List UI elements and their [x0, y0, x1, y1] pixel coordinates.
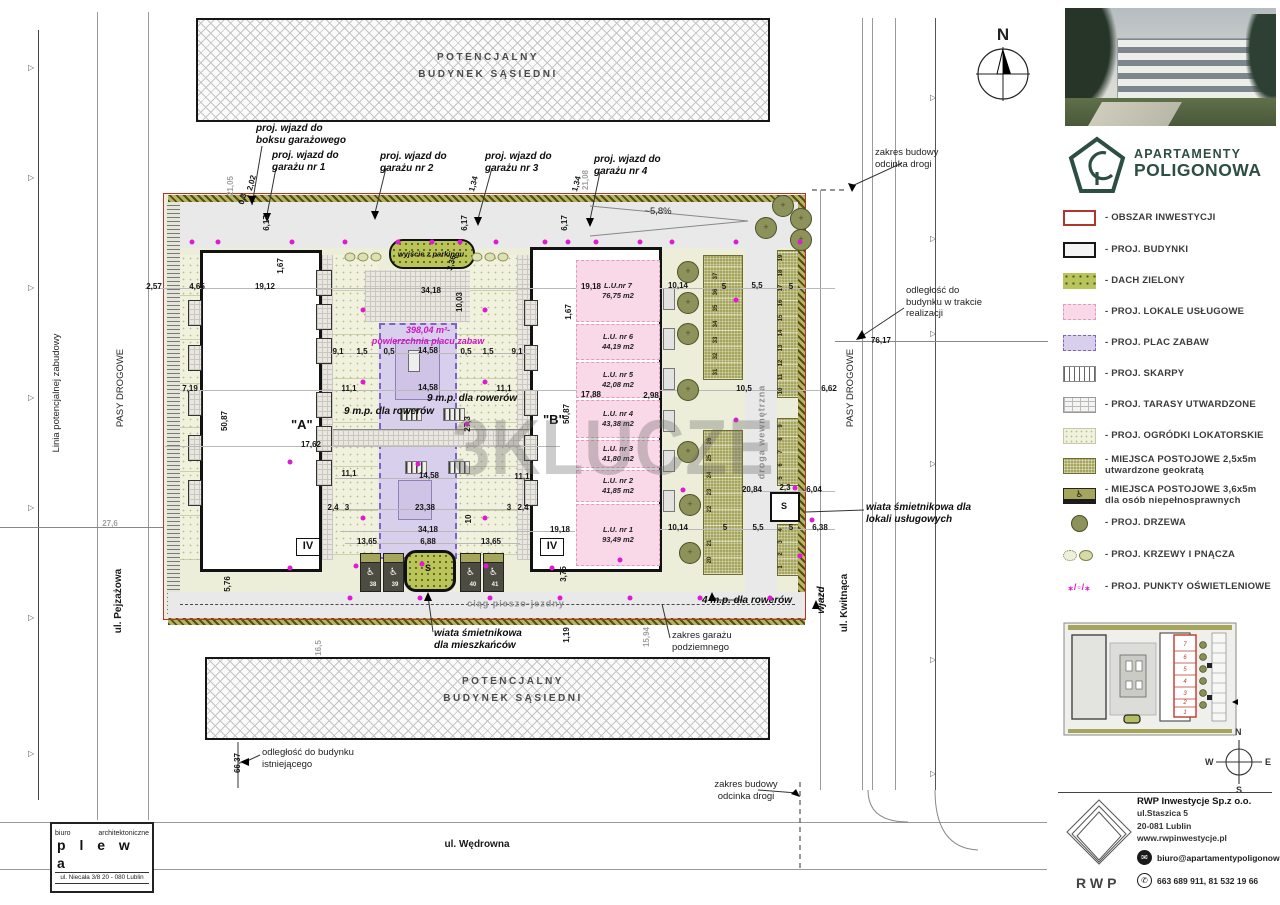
parking-space-number: 17 — [778, 285, 784, 292]
parking-space-number: 13 — [778, 345, 784, 352]
architect-block: biuro architektoniczne p l e w a ul. Nie… — [50, 822, 154, 893]
parking-space-number: 16 — [778, 300, 784, 307]
dimension-label: 11,1 — [341, 385, 356, 393]
tree-icon: + — [677, 323, 699, 345]
lighting-point-icon — [798, 554, 803, 559]
annotation: ul. Wędrowna — [445, 839, 510, 851]
legend-item: ⁎/▫/⁎- PROJ. PUNKTY OŚWIETLENIOWE — [1063, 579, 1271, 595]
boundary-marker: ▷ — [930, 460, 936, 468]
lighting-point-icon — [190, 240, 195, 245]
dimension-label: 2,98 — [643, 392, 659, 400]
dimension-label: 5,5 — [752, 524, 763, 532]
annotation: ul. Kwitnąca — [839, 574, 851, 632]
service-unit-name: L.U. nr 5 — [577, 370, 659, 380]
lighting-point-icon — [361, 380, 366, 385]
parking-space-number: 3 — [778, 540, 784, 543]
legend-item: - PROJ. TARASY UTWARDZONE — [1063, 397, 1256, 413]
boundary-marker: ▷ — [28, 394, 34, 402]
dimension-label: 6,17 — [561, 215, 569, 231]
dim-line — [145, 288, 835, 289]
lighting-point-icon — [618, 558, 623, 563]
parking-space-number: 18 — [778, 270, 784, 277]
legend-label-line: dla osób niepełnosprawnych — [1105, 496, 1256, 507]
shrub-icon — [472, 253, 483, 262]
legend-item: - OBSZAR INWESTYCJI — [1063, 210, 1215, 226]
drzewa-swatch-icon — [1071, 515, 1088, 532]
dimension-label: 6,88 — [420, 538, 436, 546]
lighting-point-icon — [483, 308, 488, 313]
photo-path — [1088, 102, 1182, 126]
brand-line1: APARTAMENTY — [1134, 148, 1262, 161]
dimension-label: 9,1 — [332, 348, 343, 356]
annotation: proj. wjazd do garażu nr 3 — [485, 151, 552, 175]
dimension-label: 13,65 — [357, 538, 377, 546]
legend-item: - DACH ZIELONY — [1063, 273, 1185, 289]
company-city: 20-081 Lublin — [1137, 820, 1277, 832]
boundary-marker: ▷ — [28, 64, 34, 72]
dimension-label: 19,18 — [550, 526, 570, 534]
dimension-label: 7,19 — [182, 385, 198, 393]
tarasy-swatch-icon — [1063, 397, 1096, 413]
architect-address: ul. Niecała 3/8 20 - 080 Lublin — [55, 872, 149, 884]
lighting-point-icon — [566, 240, 571, 245]
parking-space-number: 31 — [713, 369, 719, 376]
parking-space-number: 6 — [778, 463, 784, 466]
boundary-marker: ▷ — [28, 504, 34, 512]
dimension-label: 21,05 — [227, 176, 235, 196]
annotation: zakres budowy odcinka drogi — [714, 779, 777, 802]
parking-space-number: 37 — [713, 273, 719, 280]
dim-line — [340, 531, 575, 532]
dimension-label: 1,34 — [468, 175, 480, 192]
pentagon-logo-icon — [1068, 136, 1126, 196]
shrub-icon — [358, 253, 369, 262]
annotation: POTENCJALNY BUDYNEK SĄSIEDNI — [418, 49, 557, 83]
lighting-point-icon — [458, 240, 463, 245]
parking-space-number: 15 — [778, 315, 784, 322]
tree-icon: + — [790, 208, 812, 230]
parking-space-number: 40 — [470, 582, 477, 588]
annotation: ciąg pieszo-jezdny — [467, 599, 565, 610]
dimension-label: 14,58 — [418, 384, 438, 392]
annotation: ul. Pejzażowa — [113, 569, 125, 633]
annotation: wyjście z parkingu — [398, 250, 464, 258]
photo-trees — [1246, 14, 1276, 104]
parking-space-number: 33 — [713, 337, 719, 344]
dimension-label: 9,1 — [511, 348, 522, 356]
road-line — [935, 18, 936, 790]
dimension-label: 19,12 — [255, 283, 275, 291]
parking-space-number: 7 — [778, 450, 784, 453]
compass-e: E — [1265, 758, 1271, 767]
company-street: ul.Staszica 5 — [1137, 807, 1277, 819]
shrub-icon — [498, 253, 509, 262]
dimension-label: 0,5 — [460, 348, 471, 356]
legend-label: - MIEJSCA POSTOJOWE 2,5x5mutwardzone geo… — [1105, 455, 1256, 477]
annotation: wjazd — [816, 586, 828, 613]
legend-label-line: - PROJ. OGRÓDKI LOKATORSKIE — [1105, 431, 1264, 442]
dimension-label: 17,88 — [581, 391, 601, 399]
road-line — [38, 30, 39, 800]
annotation: 398,04 m²- powierzchnia placu zabaw — [372, 325, 485, 348]
dimension-label: 3 — [507, 504, 511, 512]
lighting-point-icon — [734, 240, 739, 245]
dimension-label: 3,75 — [560, 566, 568, 582]
boundary-marker: ▷ — [930, 330, 936, 338]
shrub-blob-icon — [1079, 550, 1093, 561]
legend-label-line: - PROJ. BUDYNKI — [1105, 245, 1188, 256]
lighting-point-icon — [483, 380, 488, 385]
tree-icon: + — [679, 542, 701, 564]
lighting-point-icon — [628, 596, 633, 601]
north-arrow: N — [975, 26, 1031, 110]
service-unit-area: 76,75 m2 — [577, 291, 659, 301]
legend-label: - PROJ. LOKALE USŁUGOWE — [1105, 307, 1244, 318]
geokrata-swatch-icon — [1063, 458, 1096, 474]
annotation: zakres budowy odcinka drogi — [875, 147, 938, 170]
dimension-label: 6,38 — [812, 524, 828, 532]
lighting-point-icon — [354, 564, 359, 569]
dimension-label: 11,1 — [341, 470, 356, 478]
punkty-swatch-icon: ⁎/▫/⁎ — [1063, 579, 1096, 595]
dimension-label: 6,17 — [461, 215, 469, 231]
dimension-label: 17,62 — [301, 441, 321, 449]
lokale-swatch-icon — [1063, 304, 1096, 320]
dimension-label: 34,18 — [421, 287, 441, 295]
boundary-marker: ▷ — [28, 750, 34, 758]
dimension-label: 3 — [345, 504, 349, 512]
phone-icon: ✆ — [1137, 873, 1152, 888]
boundary-marker: ▷ — [28, 174, 34, 182]
boundary-marker: ▷ — [28, 614, 34, 622]
dimension-label: 34,18 — [418, 526, 438, 534]
lighting-point-icon — [543, 240, 548, 245]
lighting-point-icon — [594, 240, 599, 245]
architect-word1: biuro — [55, 830, 71, 837]
annotation: odległość do budynku istniejącego — [262, 747, 354, 770]
shrub-icon — [345, 253, 356, 262]
dimension-label: 10,14 — [668, 282, 688, 290]
boundary-marker: ▷ — [28, 284, 34, 292]
dimension-label: 10,03 — [456, 292, 464, 312]
building-b-storeys: IV — [540, 538, 564, 556]
parking-space-number: 9 — [778, 424, 784, 427]
key-plan-inset: 765 432 1 — [1062, 603, 1252, 743]
legend-label: - PROJ. OGRÓDKI LOKATORSKIE — [1105, 431, 1264, 442]
rwp-logo-text: RWP — [1076, 876, 1120, 890]
lighting-point-icon — [810, 518, 815, 523]
parking-space-number: 4 — [778, 528, 784, 531]
legend-label: - PROJ. PUNKTY OŚWIETLENIOWE — [1105, 582, 1271, 593]
parking-space-number: 34 — [713, 321, 719, 328]
brand-line2: POLIGONOWA — [1134, 161, 1262, 180]
legend-item: - PROJ. SKARPY — [1063, 366, 1184, 382]
legend-label: - PROJ. TARASY UTWARDZONE — [1105, 400, 1256, 411]
road-line — [895, 18, 896, 790]
lighting-point-icon — [361, 308, 366, 313]
north-label: N — [975, 26, 1031, 43]
company-name: RWP Inwestycje Sp.z o.o. — [1137, 796, 1277, 807]
service-unit: L.U. nr 644,19 m2 — [576, 324, 660, 360]
dimension-label: 1,67 — [565, 304, 573, 320]
lighting-point-icon — [416, 462, 421, 467]
company-www[interactable]: www.rwpinwestycje.pl — [1137, 832, 1277, 844]
legend-label-line: - DACH ZIELONY — [1105, 276, 1185, 287]
dimension-label: 19,18 — [581, 283, 601, 291]
skarpy-swatch-icon — [1063, 366, 1096, 382]
lighting-point-icon — [483, 516, 488, 521]
tree-icon: + — [677, 292, 699, 314]
lighting-point-icon — [734, 298, 739, 303]
watermark: 3KLUCZE — [452, 408, 775, 486]
road-line — [862, 18, 863, 790]
dimension-label: 76,17 — [871, 337, 891, 345]
service-unit: L.U.nr 776,75 m2 — [576, 260, 660, 322]
service-unit-name: L.U. nr 6 — [577, 332, 659, 342]
legend-label: - PROJ. PLAC ZABAW — [1105, 338, 1209, 349]
dimension-label: 5,5 — [751, 282, 762, 290]
annotation: wiata śmietnikowa dla mieszkańców — [434, 628, 522, 652]
compass-n: N — [1235, 728, 1242, 737]
plac-swatch-icon — [1063, 335, 1096, 351]
parking-space-number: 41 — [492, 582, 499, 588]
parking-space-number: 8 — [778, 437, 784, 440]
legend-label-line: - PROJ. PLAC ZABAW — [1105, 338, 1209, 349]
site-plan-sheet: ♿ ♿ ♿ ♿ S S "A" "B" IV IV — [0, 0, 1280, 905]
annotation: 9 m.p. dla rowerów — [344, 406, 434, 418]
legend-label: - DACH ZIELONY — [1105, 276, 1185, 287]
lighting-point-icon — [343, 240, 348, 245]
parking-space-number: 22 — [707, 506, 713, 513]
legend-label: - PROJ. BUDYNKI — [1105, 245, 1188, 256]
legend-label-line: - PROJ. PUNKTY OŚWIETLENIOWE — [1105, 582, 1271, 593]
tree-icon: + — [677, 261, 699, 283]
dimension-label: 15,94 — [643, 627, 651, 647]
dimension-label: 4,65 — [189, 283, 205, 291]
boundary-marker: ▷ — [930, 235, 936, 243]
legend-item: - PROJ. BUDYNKI — [1063, 242, 1188, 258]
parking-space-number: 14 — [778, 330, 784, 337]
legend-label: - OBSZAR INWESTYCJI — [1105, 213, 1215, 224]
parking-space-number: 32 — [713, 353, 719, 360]
company-email[interactable]: biuro@apartamentypoligonowa.pl — [1157, 853, 1280, 863]
legend-label: - PROJ. SKARPY — [1105, 369, 1184, 380]
road-line — [148, 12, 149, 820]
parking-space-number: 5 — [778, 476, 784, 479]
service-unit: L.U. nr 193,49 m2 — [576, 504, 660, 566]
parking-space-number: 21 — [707, 540, 713, 547]
lighting-point-icon — [288, 460, 293, 465]
service-unit-name: L.U. nr 1 — [577, 525, 659, 535]
lighting-point-icon — [288, 566, 293, 571]
brand-name: APARTAMENTY POLIGONOWA — [1134, 148, 1262, 180]
parking-space-number: 19 — [778, 255, 784, 262]
dimension-label: 0,5 — [383, 348, 394, 356]
legend-label: - MIEJSCA POSTOJOWE 3,6x5mdla osób niepe… — [1105, 485, 1256, 507]
service-unit-area: 44,19 m2 — [577, 342, 659, 352]
dimension-label: 16,5 — [315, 640, 323, 656]
annotation: POTENCJALNY BUDYNEK SĄSIEDNI — [443, 673, 582, 707]
dimension-label: 21,08 — [582, 170, 590, 190]
boundary-marker: ▷ — [930, 656, 936, 664]
parking-space-number: 1 — [778, 565, 784, 568]
compass-s: S — [1236, 786, 1242, 795]
dimension-label: 5 — [789, 283, 793, 291]
company-phones[interactable]: 663 689 911, 81 532 19 66 — [1157, 876, 1258, 886]
brand-logo — [1068, 136, 1126, 196]
legend-item: - PROJ. KRZEWY I PNĄCZA — [1063, 547, 1235, 563]
lighting-point-icon — [348, 596, 353, 601]
dimension-label: 1,67 — [277, 258, 285, 274]
lighting-point-icon — [670, 240, 675, 245]
service-unit-area: 93,49 m2 — [577, 535, 659, 545]
lighting-point-icon — [396, 240, 401, 245]
lighting-point-icon — [418, 596, 423, 601]
lighting-point-icon — [361, 516, 366, 521]
dimension-label: 6,62 — [821, 385, 837, 393]
dimension-label: 5 — [789, 524, 793, 532]
dimension-label: 10,5 — [736, 385, 752, 393]
email-icon: ✉ — [1137, 850, 1152, 865]
dimension-label: 50,87 — [221, 411, 229, 431]
lighting-point-icon — [550, 566, 555, 571]
lighting-point-icon — [488, 596, 493, 601]
dim-line — [0, 527, 163, 528]
dimension-label: 2,4 — [517, 504, 528, 512]
svg-text:2: 2 — [1182, 700, 1187, 706]
shrub-icon — [485, 253, 496, 262]
annotation: odległość do budynku w trakcie realizacj… — [906, 285, 982, 320]
dimension-label: 1,5 — [356, 348, 367, 356]
parking-space-number: 36 — [713, 289, 719, 296]
budynki-swatch-icon — [1063, 242, 1096, 258]
dimension-label: 14,58 — [419, 472, 439, 480]
road-line — [97, 12, 98, 820]
lighting-point-icon — [420, 562, 425, 567]
lighting-point-icon — [793, 486, 798, 491]
building-a-storeys: IV — [296, 538, 320, 556]
dimension-label: 6,17 — [263, 215, 271, 231]
lighting-point-icon — [558, 596, 563, 601]
parking-space-number: 10 — [778, 388, 784, 395]
compass-w: W — [1205, 758, 1214, 767]
dimension-label: 23,38 — [415, 504, 435, 512]
dimension-label: 2,02 — [246, 174, 258, 191]
legend-label-line: utwardzone geokratą — [1105, 466, 1256, 477]
annotation: proj. wjazd do garażu nr 1 — [272, 150, 339, 174]
legend-item: - MIEJSCA POSTOJOWE 2,5x5mutwardzone geo… — [1063, 455, 1256, 477]
dimension-label: 11,1 — [496, 385, 511, 393]
legend-label-line: - PROJ. DRZEWA — [1105, 518, 1186, 529]
legend-label-line: - OBSZAR INWESTYCJI — [1105, 213, 1215, 224]
annotation: zakres garażu podziemnego — [672, 630, 732, 653]
dimension-label: 1,19 — [563, 627, 571, 643]
annotation: 4 m.p. dla rowerów — [702, 595, 792, 607]
road-line — [872, 18, 873, 790]
annotation: PASY DROGOWE — [115, 349, 127, 427]
svg-text:1: 1 — [1183, 710, 1186, 716]
shrub-icon — [371, 253, 382, 262]
obszar-swatch-icon — [1063, 210, 1096, 226]
lighting-point-icon — [698, 596, 703, 601]
boundary-marker: ▷ — [930, 770, 936, 778]
parking-space-number: 2 — [778, 552, 784, 555]
niepelnosprawni-swatch-icon: ♿ — [1063, 488, 1096, 504]
dimension-label: 2,3 — [779, 484, 790, 492]
dimension-label: 10 — [465, 515, 473, 524]
legend-item: - PROJ. DRZEWA — [1063, 515, 1186, 532]
legend-label-line: - PROJ. LOKALE USŁUGOWE — [1105, 307, 1244, 318]
lighting-point-icon — [430, 240, 435, 245]
key-plan-compass: N E S W — [1206, 732, 1272, 794]
tree-icon: + — [755, 217, 777, 239]
company-info: RWP Inwestycje Sp.z o.o. ul.Staszica 5 2… — [1137, 796, 1277, 888]
boundary-marker: ▷ — [930, 94, 936, 102]
legend-label: - PROJ. DRZEWA — [1105, 518, 1186, 529]
legend-label-line: - PROJ. SKARPY — [1105, 369, 1184, 380]
dimension-label: 66,37 — [234, 753, 242, 773]
annotation: wiata śmietnikowa dla lokali usługowych — [866, 502, 971, 526]
parking-space-number: 39 — [392, 582, 399, 588]
dim-line — [835, 341, 1048, 342]
legend-item: ♿- MIEJSCA POSTOJOWE 3,6x5mdla osób niep… — [1063, 485, 1256, 507]
ogrodki-swatch-icon — [1063, 428, 1096, 444]
dimension-label: 14,58 — [418, 347, 438, 355]
dimension-label: 13,65 — [481, 538, 501, 546]
rwp-diamond-icon — [1064, 798, 1134, 876]
legend-label: - PROJ. KRZEWY I PNĄCZA — [1105, 550, 1235, 561]
shrub-blob-icon — [1063, 550, 1077, 561]
road-line-wedrowna — [0, 869, 1047, 870]
dach-swatch-icon — [1063, 273, 1096, 289]
service-unit-area: 42,08 m2 — [577, 380, 659, 390]
dimension-label: 10,14 — [668, 524, 688, 532]
parking-space-number: 35 — [713, 305, 719, 312]
dimension-label: 2,4 — [327, 504, 338, 512]
annotation: ~5,8% — [644, 206, 671, 218]
legend-label-line: - PROJ. KRZEWY I PNĄCZA — [1105, 550, 1235, 561]
lighting-point-icon — [216, 240, 221, 245]
parking-space-number: 38 — [370, 582, 377, 588]
parking-space-number: 20 — [707, 557, 713, 564]
dimension-label: 5 — [722, 283, 726, 291]
architect-name: p l e w a — [57, 837, 147, 872]
parking-space-number: 12 — [778, 360, 784, 367]
annotation: proj. wjazd do boksu garażowego — [256, 123, 346, 147]
annotation: PASY DROGOWE — [845, 349, 857, 427]
lighting-point-icon — [798, 240, 803, 245]
architect-word2: architektoniczne — [98, 830, 149, 837]
legend-item: - PROJ. LOKALE USŁUGOWE — [1063, 304, 1244, 320]
north-compass-icon — [975, 43, 1031, 105]
lighting-point-icon — [768, 596, 773, 601]
legend-item: - PROJ. OGRÓDKI LOKATORSKIE — [1063, 428, 1264, 444]
tree-icon: + — [677, 379, 699, 401]
dimension-label: 1,5 — [482, 348, 493, 356]
rwp-logo — [1064, 798, 1134, 876]
dimension-label: 5,76 — [224, 576, 232, 592]
hero-photo — [1065, 8, 1276, 126]
tree-icon: + — [679, 494, 701, 516]
road-line-wedrowna — [0, 822, 1047, 823]
dimension-label: 5 — [723, 524, 727, 532]
lighting-point-icon — [290, 240, 295, 245]
krzewy-swatch-icon — [1063, 547, 1096, 563]
annotation: Linia potencjalnej zabudowy — [51, 334, 63, 453]
annotation: proj. wjazd do garażu nr 4 — [594, 154, 661, 178]
legend-label-line: - PROJ. TARASY UTWARDZONE — [1105, 400, 1256, 411]
building-a-label: "A" — [291, 418, 313, 431]
